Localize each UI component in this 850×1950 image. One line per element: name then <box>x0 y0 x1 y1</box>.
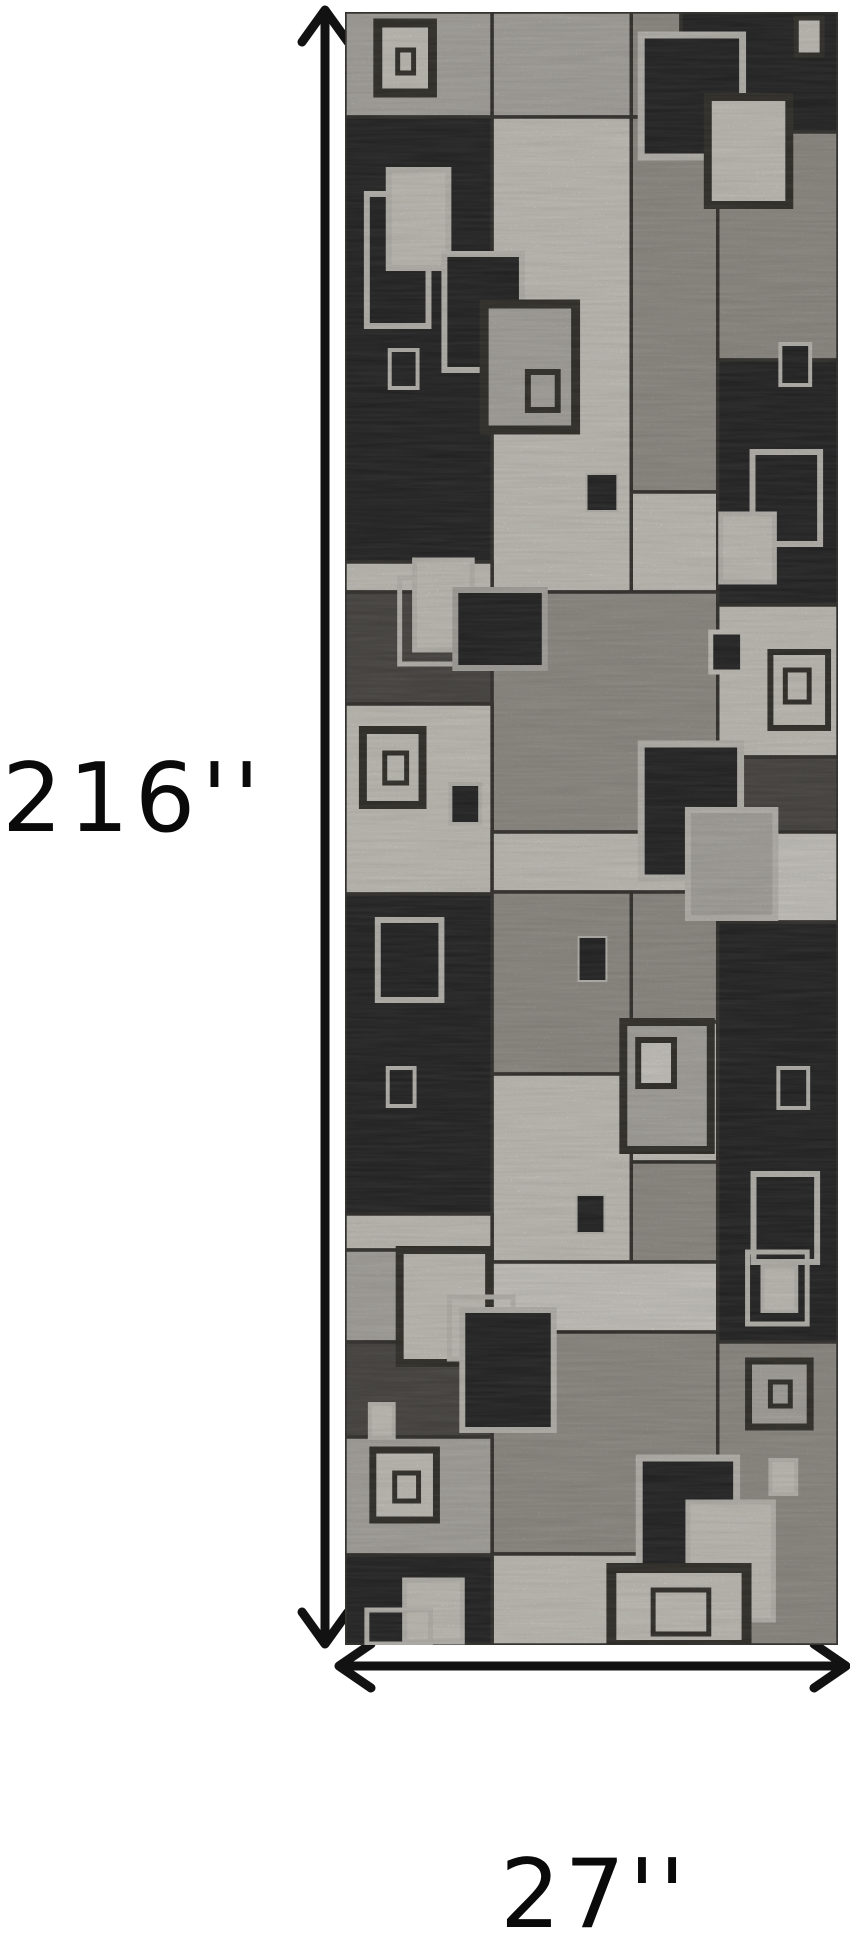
height-dimension-label: 216'' <box>2 752 266 847</box>
width-dimension-label: 27'' <box>500 1848 689 1943</box>
arrow-up-head <box>302 10 348 42</box>
rug-image <box>345 12 838 1645</box>
arrow-right-head <box>814 1644 846 1688</box>
vertical-dimension-arrow <box>302 10 348 1644</box>
arrow-down-head <box>302 1612 348 1644</box>
horizontal-dimension-arrow <box>339 1644 846 1688</box>
rug-pattern <box>345 12 838 1645</box>
arrow-left-head <box>339 1644 371 1688</box>
rug-texture-grain <box>345 12 838 1645</box>
